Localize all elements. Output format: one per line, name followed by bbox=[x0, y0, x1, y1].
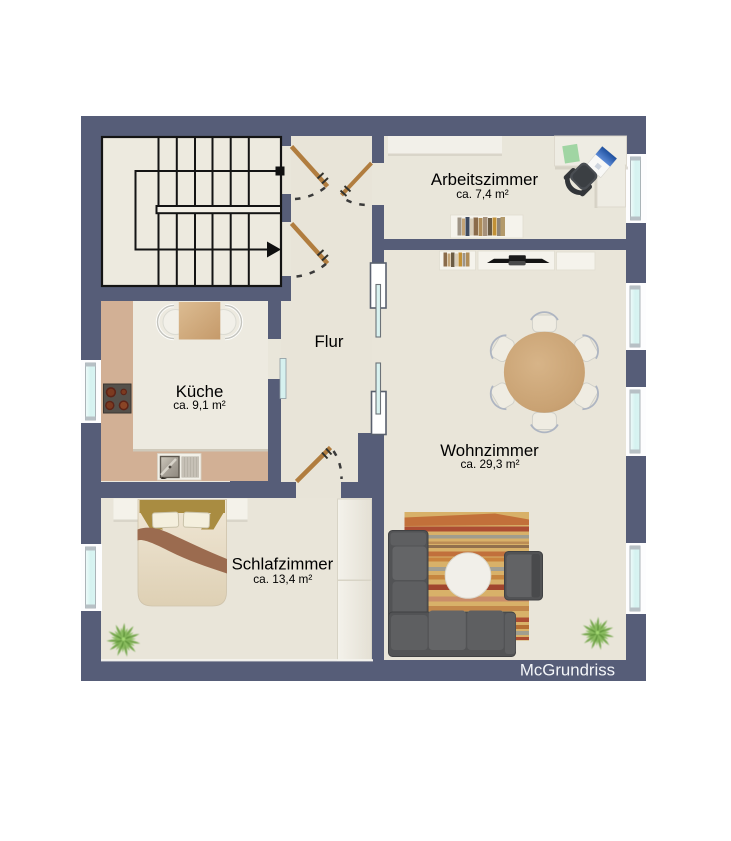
svg-text:Schlafzimmer: Schlafzimmer bbox=[232, 555, 334, 574]
svg-text:ca. 7,4 m²: ca. 7,4 m² bbox=[456, 187, 509, 201]
svg-text:ca. 9,1 m²: ca. 9,1 m² bbox=[173, 398, 226, 412]
svg-text:ca. 29,3 m²: ca. 29,3 m² bbox=[460, 457, 519, 471]
svg-text:Arbeitszimmer: Arbeitszimmer bbox=[431, 170, 539, 189]
svg-text:McGrundriss: McGrundriss bbox=[520, 661, 615, 680]
svg-text:ca. 13,4 m²: ca. 13,4 m² bbox=[253, 572, 312, 586]
svg-text:Flur: Flur bbox=[315, 332, 344, 351]
